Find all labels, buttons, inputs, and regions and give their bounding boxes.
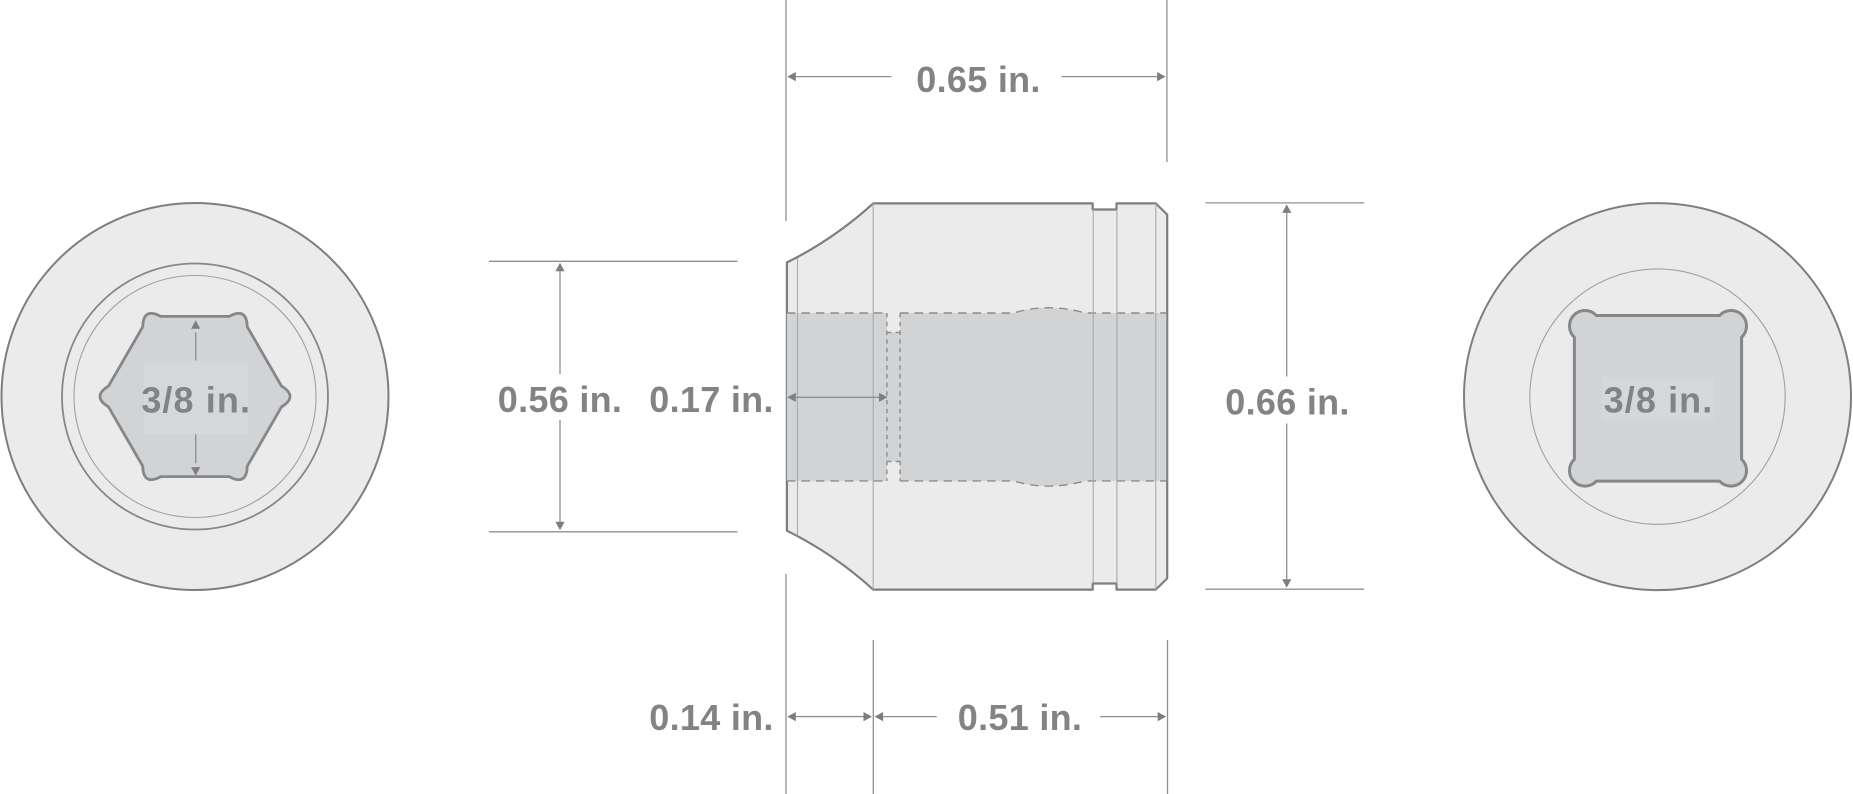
svg-text:0.51 in.: 0.51 in. (958, 697, 1082, 738)
svg-text:0.66 in.: 0.66 in. (1225, 382, 1349, 423)
svg-text:0.17 in.: 0.17 in. (649, 379, 773, 420)
svg-text:0.56 in.: 0.56 in. (498, 379, 622, 420)
svg-text:3/8 in.: 3/8 in. (141, 379, 251, 420)
svg-text:3/8 in.: 3/8 in. (1604, 379, 1714, 420)
svg-text:0.14 in.: 0.14 in. (649, 697, 773, 738)
svg-text:0.65 in.: 0.65 in. (916, 59, 1040, 100)
